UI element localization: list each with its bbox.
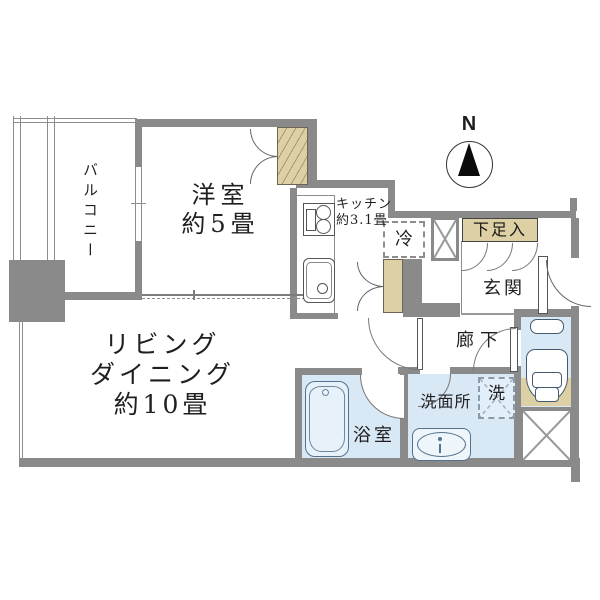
- living-dining-label: リビング ダイニング 約10畳: [55, 327, 270, 423]
- washer-label: 洗: [480, 383, 513, 405]
- balcony-window-tick: [131, 203, 146, 204]
- living-window-line: [19, 322, 20, 458]
- kitchen-sink-drain: [317, 283, 328, 294]
- compass-north-label: N: [459, 112, 479, 136]
- pipe-shaft-icon: [431, 217, 459, 261]
- stove-burner-icon: [316, 219, 331, 234]
- wall: [308, 119, 317, 188]
- shoe-cabinet: 下足入: [462, 218, 538, 242]
- wall: [420, 303, 460, 317]
- entrance-label: 玄関: [478, 277, 530, 301]
- balcony-rail-line: [54, 116, 55, 262]
- wall: [296, 180, 395, 188]
- shoe-cabinet-label: 下足入: [473, 220, 527, 239]
- compass: N: [446, 112, 493, 188]
- partition-line: [142, 294, 310, 296]
- bathtub-inner: [309, 386, 345, 452]
- balcony-window: [135, 167, 142, 241]
- closet-door-arc: [250, 156, 278, 184]
- refrigerator-label: 冷: [383, 221, 425, 258]
- living-window-line: [22, 322, 23, 458]
- closet: [277, 127, 308, 185]
- western-room-label: 洋室 約5畳: [158, 182, 283, 238]
- toilet-seat-icon: [532, 372, 562, 388]
- closet-door-arc: [250, 129, 278, 157]
- partition-dashed-line: [142, 298, 310, 299]
- balcony-rail-line: [20, 116, 21, 262]
- hallway-door-arc: [368, 318, 420, 370]
- kitchen-cabinet: [383, 259, 403, 313]
- bathroom-label: 浴室: [346, 426, 402, 446]
- balcony-rail-line: [13, 122, 137, 123]
- balcony-label: バルコニー: [78, 158, 102, 266]
- wall: [295, 368, 302, 458]
- kitchen-cabinet-door-arc: [357, 262, 384, 287]
- hallway-label: 廊下: [438, 330, 522, 352]
- washbasin-bowl: [417, 432, 466, 457]
- entrance-side-line: [461, 241, 462, 313]
- stove-burner-icon: [316, 205, 331, 220]
- bathtub-faucet-icon: [322, 389, 329, 396]
- kitchen-sink-inner: [306, 262, 332, 299]
- toilet-seat-icon: [535, 387, 559, 402]
- balcony-rail-line: [13, 118, 137, 119]
- washroom-label: 洗面所: [409, 392, 483, 412]
- compass-arrow-icon: [458, 143, 480, 176]
- wall: [395, 211, 576, 218]
- floorplan: 下足入 N バルコニー 洋室 約5畳 リビング ダイニング 約10畳: [0, 0, 600, 600]
- kitchen-cabinet-door-arc: [357, 286, 384, 311]
- entrance-door-arc: [546, 260, 591, 307]
- stove-grill-icon: [306, 209, 316, 231]
- wall: [571, 218, 579, 258]
- wall: [19, 458, 580, 467]
- wall: [570, 198, 577, 211]
- balcony-rail-line: [13, 116, 14, 262]
- toilet-tank-icon: [530, 319, 564, 334]
- shoe-cabinet-door-arc: [512, 243, 538, 271]
- entrance-threshold-line: [461, 313, 515, 315]
- washbasin-stem: [439, 444, 441, 453]
- pillar: [9, 260, 65, 322]
- partition-tick: [193, 290, 195, 300]
- shoe-cabinet-door-arc: [462, 243, 488, 271]
- pipe-shaft-icon: [520, 408, 573, 463]
- wall: [135, 119, 317, 127]
- wall: [135, 119, 142, 167]
- wall: [295, 368, 362, 375]
- wall: [63, 292, 142, 300]
- balcony-rail-line: [47, 116, 48, 262]
- washbasin-faucet-icon: [438, 437, 442, 441]
- shoe-cabinet-door-arc: [487, 243, 513, 271]
